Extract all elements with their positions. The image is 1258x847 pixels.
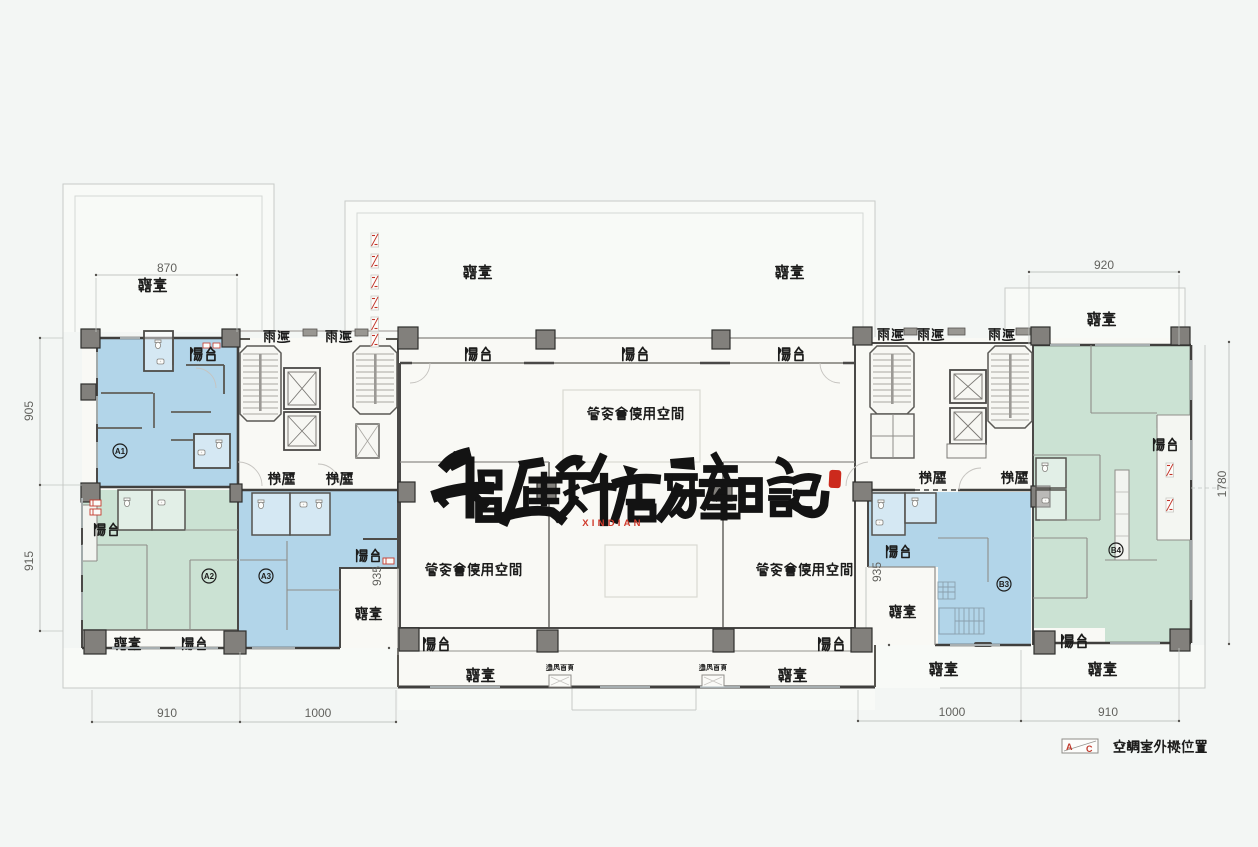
svg-text:910: 910 — [157, 706, 177, 720]
svg-text:935: 935 — [870, 562, 884, 582]
svg-text:B3: B3 — [999, 580, 1010, 589]
svg-text:A1: A1 — [115, 447, 126, 456]
svg-text:920: 920 — [1094, 258, 1114, 272]
svg-text:1000: 1000 — [305, 706, 332, 720]
svg-text:1000: 1000 — [939, 705, 966, 719]
svg-text:910: 910 — [1098, 705, 1118, 719]
svg-text:915: 915 — [22, 551, 36, 571]
svg-text:905: 905 — [22, 401, 36, 421]
svg-text:XINDIAN: XINDIAN — [582, 518, 643, 529]
svg-text:1780: 1780 — [1215, 470, 1229, 497]
svg-text:C: C — [1086, 744, 1093, 754]
svg-text:870: 870 — [157, 261, 177, 275]
svg-text:A2: A2 — [204, 572, 215, 581]
svg-text:B4: B4 — [1111, 546, 1122, 555]
svg-text:935: 935 — [370, 566, 384, 586]
svg-text:A: A — [1066, 742, 1073, 752]
svg-text:A3: A3 — [261, 572, 272, 581]
